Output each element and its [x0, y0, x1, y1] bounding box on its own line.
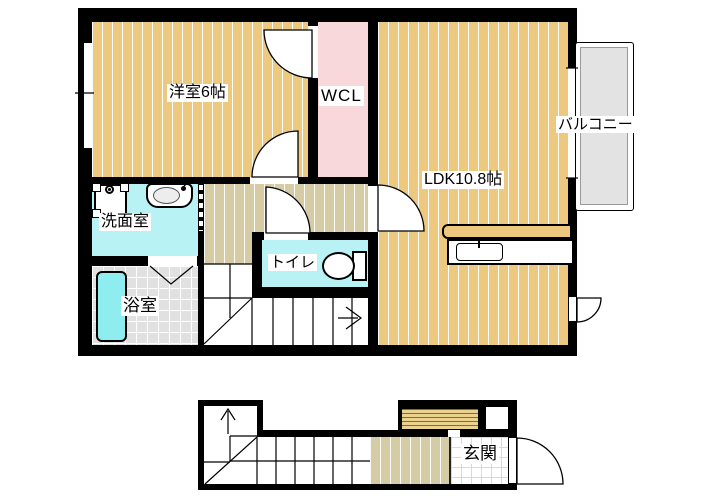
room-ldk-label: LDK10.8帖	[422, 171, 504, 189]
door-arc-ldk-right	[577, 298, 601, 322]
door-leaf-ldk-right	[568, 296, 577, 322]
opening-yoshitsu-hall	[250, 177, 298, 184]
room-genkan-label: 玄関	[461, 444, 499, 464]
kitchen-counter-top	[442, 224, 572, 239]
cabinet-notch	[448, 430, 460, 437]
hallway-2f-landing	[204, 232, 252, 264]
entrance-door-leaf	[508, 437, 517, 484]
stairs-1f-upper	[204, 406, 257, 484]
washer-pan-corner	[120, 183, 129, 192]
window-yoshitsu-left	[84, 43, 92, 148]
stairs-2f-run	[252, 298, 368, 345]
floorplan: 洋室6帖 WCL LDK10.8帖 バルコニー 洗面室 トイレ 浴室 玄関	[0, 0, 710, 500]
sink-basin	[153, 187, 180, 204]
hallway-2f	[204, 184, 368, 232]
room-wcl-label: WCL	[319, 86, 364, 106]
opening-toilet	[264, 232, 308, 240]
washer-drain-dot	[108, 188, 111, 191]
room-senmen-label: 洗面室	[99, 213, 151, 231]
room-bath-label: 浴室	[121, 296, 159, 316]
sink-faucet	[181, 186, 186, 191]
stairs-2f-upper	[204, 264, 252, 345]
toilet-bowl	[322, 252, 355, 280]
room-balcony-label: バルコニー	[556, 116, 635, 133]
hallway-1f	[370, 437, 449, 484]
opening-bath-folding	[148, 256, 197, 266]
room-yoshitsu-label: 洋室6帖	[167, 84, 228, 102]
opening-yoshitsu-wcl	[308, 26, 318, 78]
stairs-1f-run	[257, 437, 370, 484]
room-toilet-label: トイレ	[268, 254, 317, 271]
entrance-storage	[486, 407, 508, 429]
kitchen-faucet	[478, 237, 480, 248]
opening-hall-ldk	[368, 186, 378, 232]
washer-pan-corner	[92, 183, 101, 192]
shoe-cabinet	[402, 409, 478, 429]
door-arc-entrance	[517, 438, 563, 484]
